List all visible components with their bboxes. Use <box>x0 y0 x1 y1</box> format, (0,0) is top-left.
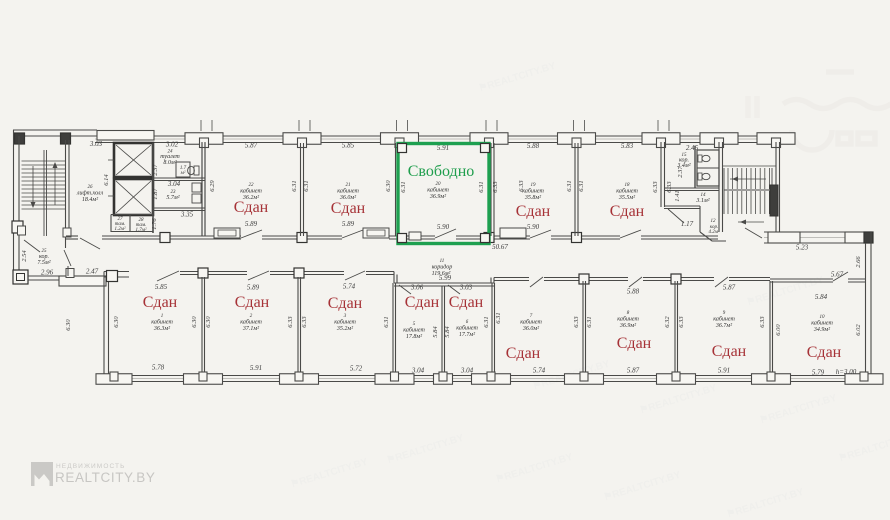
svg-text:19: 19 <box>531 183 537 188</box>
svg-text:6.33: 6.33 <box>287 316 294 328</box>
svg-text:3.06: 3.06 <box>410 284 424 292</box>
svg-text:кабинет: кабинет <box>520 319 542 326</box>
svg-text:5.87: 5.87 <box>723 284 736 292</box>
svg-text:2.66: 2.66 <box>855 256 862 268</box>
svg-text:лифт.холл: лифт.холл <box>76 190 104 197</box>
svg-text:1: 1 <box>161 314 164 319</box>
svg-text:кабинет: кабинет <box>337 188 359 195</box>
svg-text:6.31: 6.31 <box>586 316 593 327</box>
svg-text:6.30: 6.30 <box>191 316 198 328</box>
svg-text:6.02: 6.02 <box>855 324 862 336</box>
svg-text:6.30: 6.30 <box>65 319 72 331</box>
svg-text:18: 18 <box>625 183 631 188</box>
svg-text:кабинет: кабинет <box>427 187 449 194</box>
svg-text:5.79: 5.79 <box>812 369 825 377</box>
svg-text:6.33: 6.33 <box>573 316 580 328</box>
svg-text:5.7м²: 5.7м² <box>166 195 179 201</box>
svg-text:5.90: 5.90 <box>527 223 540 231</box>
svg-text:36.0м²: 36.0м² <box>522 326 539 332</box>
svg-text:1.87: 1.87 <box>152 188 159 200</box>
svg-text:Сдан: Сдан <box>516 203 551 220</box>
svg-text:6.32: 6.32 <box>664 316 671 328</box>
svg-text:6.31: 6.31 <box>400 181 407 192</box>
svg-text:6.33: 6.33 <box>301 316 308 328</box>
svg-text:6.31: 6.31 <box>291 180 298 191</box>
svg-text:36.9м²: 36.9м² <box>619 323 636 329</box>
svg-text:Сдан: Сдан <box>328 295 363 312</box>
svg-text:5.84: 5.84 <box>432 326 439 338</box>
svg-text:Свободно: Свободно <box>408 163 475 180</box>
svg-text:6.31: 6.31 <box>495 312 502 323</box>
svg-text:36.7м²: 36.7м² <box>715 323 732 329</box>
svg-text:6.33: 6.33 <box>759 316 766 328</box>
svg-text:17.8м²: 17.8м² <box>406 334 422 340</box>
svg-text:5.99: 5.99 <box>439 274 452 282</box>
svg-text:36.9м²: 36.9м² <box>429 194 446 200</box>
svg-text:5.89: 5.89 <box>342 220 355 228</box>
svg-text:5.87: 5.87 <box>627 367 640 375</box>
svg-text:кабинет: кабинет <box>522 188 544 195</box>
svg-text:Сдан: Сдан <box>617 335 652 352</box>
svg-text:5.23: 5.23 <box>796 244 809 252</box>
svg-text:2.54: 2.54 <box>21 250 28 262</box>
svg-text:Сдан: Сдан <box>235 294 270 311</box>
svg-text:Сдан: Сдан <box>712 343 747 360</box>
svg-text:6.31: 6.31 <box>578 180 585 191</box>
svg-text:Сдан: Сдан <box>143 294 178 311</box>
svg-text:3.04: 3.04 <box>411 367 425 375</box>
svg-text:2.37: 2.37 <box>152 164 159 176</box>
svg-text:3.03: 3.03 <box>89 140 103 148</box>
svg-text:Сдан: Сдан <box>807 344 842 361</box>
svg-text:кабинет: кабинет <box>456 325 478 332</box>
svg-text:5.74: 5.74 <box>343 283 356 291</box>
svg-text:5.89: 5.89 <box>247 284 260 292</box>
svg-text:НЕДВИЖИМОСТЬ: НЕДВИЖИМОСТЬ <box>56 463 126 470</box>
svg-text:6.30: 6.30 <box>205 316 212 328</box>
svg-text:3.03: 3.03 <box>459 284 473 292</box>
svg-text:5.72: 5.72 <box>350 365 363 373</box>
svg-text:5.83: 5.83 <box>621 142 634 150</box>
svg-text:кабинет: кабинет <box>713 316 735 323</box>
svg-text:1.41: 1.41 <box>674 190 681 201</box>
svg-text:кабинет: кабинет <box>811 320 833 327</box>
svg-text:6.31: 6.31 <box>566 180 573 191</box>
svg-text:5.84: 5.84 <box>815 293 828 301</box>
svg-text:17.7м²: 17.7м² <box>459 332 475 338</box>
svg-text:5.88: 5.88 <box>527 142 540 150</box>
svg-text:6.33: 6.33 <box>678 316 685 328</box>
svg-text:кабинет: кабинет <box>617 316 639 323</box>
svg-text:кабинет: кабинет <box>616 188 638 195</box>
svg-text:5.91: 5.91 <box>718 367 730 375</box>
svg-text:Сдан: Сдан <box>506 345 541 362</box>
svg-text:2.47: 2.47 <box>86 268 99 276</box>
svg-text:Сдан: Сдан <box>449 294 484 311</box>
svg-text:кабинет: кабинет <box>403 327 425 334</box>
svg-text:6.33: 6.33 <box>492 181 499 193</box>
svg-text:6.33: 6.33 <box>666 181 673 193</box>
svg-text:кабинет: кабинет <box>240 188 262 195</box>
svg-text:5.88: 5.88 <box>627 288 640 296</box>
svg-text:12: 12 <box>711 219 717 224</box>
svg-text:5.90: 5.90 <box>437 223 450 231</box>
svg-text:6.33: 6.33 <box>652 181 659 193</box>
svg-text:35.8м²: 35.8м² <box>524 195 541 201</box>
svg-text:h=3.00: h=3.00 <box>836 368 857 376</box>
svg-text:4.2м²: 4.2м² <box>709 229 720 235</box>
svg-text:кабинет: кабинет <box>240 319 262 326</box>
svg-text:5.91: 5.91 <box>250 364 262 372</box>
svg-text:50.67: 50.67 <box>492 243 508 251</box>
svg-text:6.31: 6.31 <box>483 316 490 327</box>
svg-text:5.85: 5.85 <box>155 283 168 291</box>
svg-text:6.31: 6.31 <box>303 180 310 191</box>
svg-text:1.7м²: 1.7м² <box>136 227 147 233</box>
svg-text:Сдан: Сдан <box>331 200 366 217</box>
svg-text:5.78: 5.78 <box>152 364 165 372</box>
svg-text:6.14: 6.14 <box>103 174 110 186</box>
svg-text:6.29: 6.29 <box>209 180 216 192</box>
svg-text:7.5м²: 7.5м² <box>37 260 50 266</box>
svg-text:26: 26 <box>88 185 94 190</box>
svg-text:5.84: 5.84 <box>444 326 451 338</box>
svg-text:REALTCITY.BY: REALTCITY.BY <box>55 470 155 485</box>
svg-text:3.02: 3.02 <box>165 141 179 149</box>
svg-text:3.04: 3.04 <box>460 367 474 375</box>
svg-text:21: 21 <box>346 183 351 188</box>
svg-text:6.00: 6.00 <box>775 324 782 336</box>
svg-text:1.76: 1.76 <box>151 218 158 230</box>
svg-text:3.35: 3.35 <box>180 211 194 219</box>
svg-text:5.87: 5.87 <box>245 142 258 150</box>
svg-text:5.89: 5.89 <box>245 220 258 228</box>
svg-text:6.33: 6.33 <box>518 180 525 192</box>
svg-text:6.30: 6.30 <box>113 316 120 328</box>
svg-text:5.85: 5.85 <box>342 142 355 150</box>
svg-text:2.96: 2.96 <box>41 269 54 277</box>
svg-text:Сдан: Сдан <box>234 199 269 216</box>
svg-text:35.5м²: 35.5м² <box>618 195 635 201</box>
svg-text:22: 22 <box>249 183 255 188</box>
svg-text:20: 20 <box>436 182 442 187</box>
svg-text:37.1м²: 37.1м² <box>242 326 259 332</box>
svg-text:35.2м²: 35.2м² <box>336 326 353 332</box>
svg-text:11: 11 <box>440 259 445 264</box>
svg-text:18.4м²: 18.4м² <box>82 196 98 203</box>
svg-text:6.31: 6.31 <box>478 181 485 192</box>
svg-text:кабинет: кабинет <box>151 319 173 326</box>
svg-text:10: 10 <box>820 315 826 320</box>
svg-text:8.0м²: 8.0м² <box>163 160 176 166</box>
svg-text:34.9м²: 34.9м² <box>813 326 830 333</box>
svg-text:кабинет: кабинет <box>334 319 356 326</box>
svg-text:Сдан: Сдан <box>405 294 440 311</box>
svg-text:2.37: 2.37 <box>677 166 684 178</box>
svg-text:6.31: 6.31 <box>383 316 390 327</box>
svg-text:36.3м²: 36.3м² <box>153 326 170 332</box>
svg-text:5.74: 5.74 <box>533 367 546 375</box>
svg-text:6.30: 6.30 <box>385 180 392 192</box>
svg-text:5.67: 5.67 <box>831 271 844 279</box>
svg-text:1.2м²: 1.2м² <box>115 226 126 232</box>
svg-text:коридор: коридор <box>432 264 453 271</box>
svg-text:3.04: 3.04 <box>167 180 181 188</box>
svg-text:3.1м²: 3.1м² <box>695 198 709 204</box>
svg-text:1.17: 1.17 <box>681 220 694 228</box>
svg-text:Сдан: Сдан <box>610 203 645 220</box>
svg-text:м²: м² <box>180 170 186 176</box>
